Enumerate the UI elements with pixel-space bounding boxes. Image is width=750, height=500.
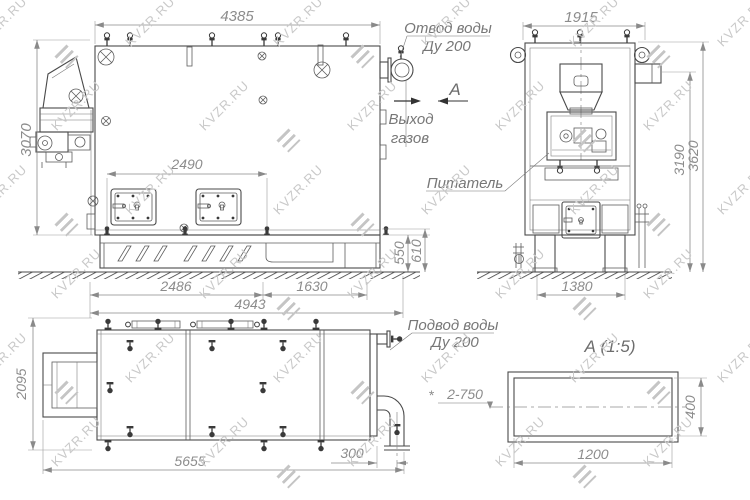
dim-3620: 3620	[685, 140, 701, 171]
water-outlet-label: Отвод воды	[404, 20, 492, 37]
dim-2095: 2095	[13, 368, 29, 400]
boiler-body-plan	[97, 330, 370, 440]
feeder-label: Питатель	[427, 175, 504, 192]
water-inlet-nozzle	[377, 331, 402, 347]
fuel-feeder-front	[30, 57, 95, 229]
drawing-page: Отвод воды Ду 200 Выход газов А 4385 3	[0, 0, 750, 500]
water-outlet-pipe	[380, 46, 413, 82]
gas-duct-side	[635, 64, 661, 83]
detail-view-a: А (1:5) 1200 400 * 2-750	[428, 337, 707, 468]
dim-4385: 4385	[220, 8, 254, 25]
detail-title: А (1:5)	[583, 337, 635, 356]
reference-label: 2-750	[446, 386, 483, 402]
water-outlet-size: Ду 200	[421, 38, 471, 55]
side-door	[533, 202, 628, 238]
dim-2490: 2490	[170, 156, 202, 172]
ash-pit	[266, 243, 333, 262]
dim-550: 550	[391, 241, 407, 265]
dim-610: 610	[408, 239, 424, 263]
roof-bolts	[104, 33, 348, 46]
reference-star: *	[428, 387, 434, 403]
dim-400: 400	[682, 395, 698, 419]
gas-exit-label-2: газов	[391, 130, 429, 147]
flange-tab	[380, 110, 386, 124]
dim-1915: 1915	[564, 9, 598, 26]
access-door-left	[111, 189, 156, 225]
base-frame	[100, 226, 389, 268]
dim-2486: 2486	[159, 278, 191, 294]
dim-300: 300	[340, 445, 364, 461]
water-inlet-label: Подвод воды	[408, 317, 499, 334]
dim-5655: 5655	[174, 453, 205, 469]
gas-exit: Выход газов	[388, 80, 433, 147]
dim-1200: 1200	[577, 446, 608, 462]
engineering-drawing: Отвод воды Ду 200 Выход газов А 4385 3	[0, 0, 750, 500]
plan-view: Подвод воды Ду 200 2095 5655	[13, 317, 498, 474]
roof-slot	[187, 47, 192, 66]
grate-bars	[118, 246, 251, 261]
leader-arrow	[487, 402, 493, 410]
gas-flow-arrow	[411, 98, 421, 105]
top-rails	[126, 321, 260, 328]
reference-callout: * 2-750	[428, 386, 493, 409]
water-inlet-size: Ду 200	[429, 334, 479, 351]
ground-line	[18, 272, 672, 279]
lifting-lugs	[511, 48, 650, 63]
boiler-body-front	[95, 46, 380, 235]
dim-1380: 1380	[561, 278, 592, 294]
view-a-letter: А	[448, 80, 460, 99]
view-a-arrow: А	[438, 80, 468, 105]
flange-tab	[380, 145, 386, 159]
dim-4943: 4943	[234, 296, 265, 312]
dim-3070: 3070	[18, 123, 35, 157]
elbow-pipe	[377, 396, 410, 468]
dim-1630: 1630	[296, 278, 327, 294]
plan-bolts	[105, 319, 325, 452]
gas-exit-label-1: Выход	[388, 111, 433, 128]
feeder-side	[547, 108, 616, 173]
feeder-plan	[43, 353, 97, 417]
access-door-right	[196, 189, 241, 225]
